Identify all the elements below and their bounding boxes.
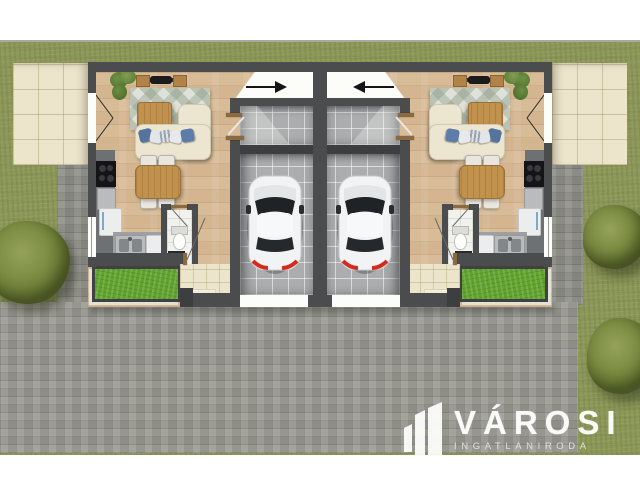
kitchen-window [88, 217, 96, 257]
cooktop-icon [524, 161, 544, 187]
tv-icon [468, 76, 490, 84]
dining-table [135, 165, 181, 199]
top-wall [320, 62, 552, 72]
pillow [445, 128, 460, 143]
bush-icon [587, 318, 640, 394]
kitchen-worktop [97, 188, 116, 210]
garage-top-wall [230, 98, 320, 106]
door-swing [432, 218, 454, 262]
terrace-door [88, 93, 96, 143]
tv-console [136, 75, 186, 86]
unit-right [320, 62, 552, 307]
garage-door-opening [240, 295, 308, 307]
kitchen-worktop [524, 188, 543, 210]
side-path-right [548, 165, 583, 305]
toilet-icon [454, 226, 469, 249]
logo-building-icon [404, 402, 444, 456]
garage-inner-wall [320, 145, 400, 154]
toilet-icon [171, 226, 186, 249]
entry-arrow-icon [352, 78, 396, 96]
logo-title: VÁROSI [454, 406, 623, 440]
garage-top-wall [320, 98, 410, 106]
pillow [180, 128, 195, 143]
tv-icon [150, 76, 172, 84]
door-swing [394, 117, 412, 137]
cooktop-icon [96, 161, 116, 187]
garage-door-opening [332, 295, 400, 307]
garage-inner-wall [240, 145, 320, 154]
party-wall [313, 62, 327, 307]
entry-arrow-icon [244, 78, 288, 96]
building [88, 62, 552, 307]
planter-bed [92, 266, 181, 302]
unit-left [88, 62, 320, 307]
planter-bed [459, 266, 548, 302]
tv-console [454, 75, 504, 86]
terrace-door [544, 93, 552, 143]
kitchen-window [544, 217, 552, 257]
car-icon [336, 174, 394, 274]
floor-plan-image: VÁROSI INGATLANIRODA [0, 0, 640, 480]
garage-left-wall [230, 140, 240, 307]
logo-tagline: INGATLANIRODA [454, 441, 623, 452]
logo: VÁROSI INGATLANIRODA [402, 398, 636, 460]
door-swing [228, 117, 246, 137]
bottom-wall [88, 253, 184, 267]
bottom-wall [456, 253, 552, 267]
car-icon [246, 174, 304, 274]
top-wall [88, 62, 320, 72]
dining-table [459, 165, 505, 199]
wall-corner [447, 288, 460, 307]
terrace-right [552, 63, 627, 165]
door-swing [186, 218, 208, 262]
wall-corner [180, 288, 193, 307]
terrace-left [13, 63, 88, 165]
garage-left-wall [400, 140, 410, 307]
terrace-door-swing [96, 93, 118, 143]
bush-icon [583, 205, 640, 269]
terrace-door-swing [522, 93, 544, 143]
